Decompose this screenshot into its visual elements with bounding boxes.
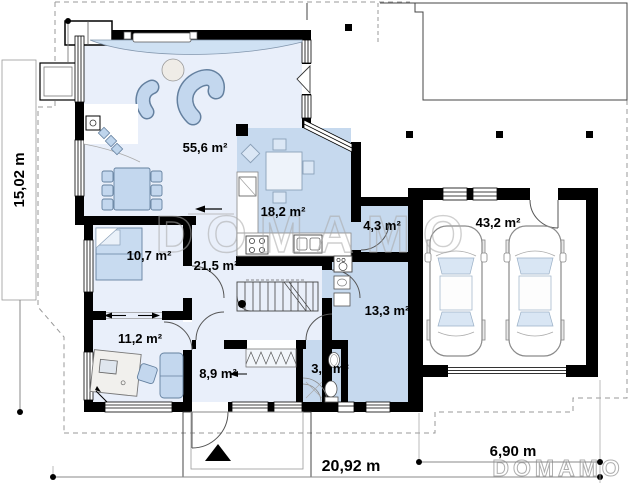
wardrobe (246, 349, 296, 367)
room-label-wc: 3,8 m² (311, 361, 349, 376)
window (274, 402, 302, 412)
room-label-office: 11,2 m² (118, 331, 163, 346)
window (302, 95, 311, 118)
dimension-left: 15,02 m (11, 152, 28, 207)
roof-outline (380, 3, 627, 100)
window (473, 188, 497, 200)
room-label-garage: 43,2 m² (476, 215, 521, 230)
room-label-utility: 13,3 m² (365, 303, 410, 318)
column-dot (496, 131, 503, 138)
window (366, 402, 390, 412)
watermark-center: DOMAMO (156, 206, 477, 264)
dining-table (102, 168, 162, 210)
window (338, 402, 354, 412)
floor-hall (236, 266, 322, 340)
window (75, 36, 84, 102)
window (84, 240, 93, 292)
garage-gate (448, 368, 566, 374)
column-dot (586, 131, 593, 138)
exterior-chimney (40, 63, 76, 100)
window (443, 188, 467, 200)
window (105, 402, 172, 412)
room-label-pantry: 4,3 m² (363, 218, 401, 233)
column-dot (406, 131, 413, 138)
window (302, 40, 311, 63)
armchair (160, 353, 183, 398)
window (232, 402, 268, 412)
room-label-kitchen-dining: 18,2 m² (261, 204, 306, 219)
room-label-hall: 21,5 m² (194, 258, 239, 273)
tv-icon (133, 33, 191, 42)
floor-plan-page: DOMAMO DOMAMO 55,6 m² 18,2 m² 4,3 m² 43,… (0, 0, 640, 483)
column-dot (345, 24, 352, 31)
rug (162, 59, 184, 81)
window (75, 140, 84, 196)
room-label-living-room: 55,6 m² (183, 140, 228, 155)
car-icon (504, 226, 566, 356)
toilet-icon (325, 381, 337, 397)
room-label-bedroom: 10,7 m² (127, 248, 172, 263)
laptop-icon (99, 359, 117, 374)
porch-slab (183, 412, 311, 477)
room-label-corridor: 8,9 m² (199, 366, 237, 381)
dimension-garage-width: 6,90 m (490, 443, 537, 460)
floor-plan: DOMAMO DOMAMO 55,6 m² 18,2 m² 4,3 m² 43,… (0, 0, 640, 483)
stair-newel (238, 300, 246, 308)
dimension-bottom: 20,92 m (322, 458, 381, 475)
